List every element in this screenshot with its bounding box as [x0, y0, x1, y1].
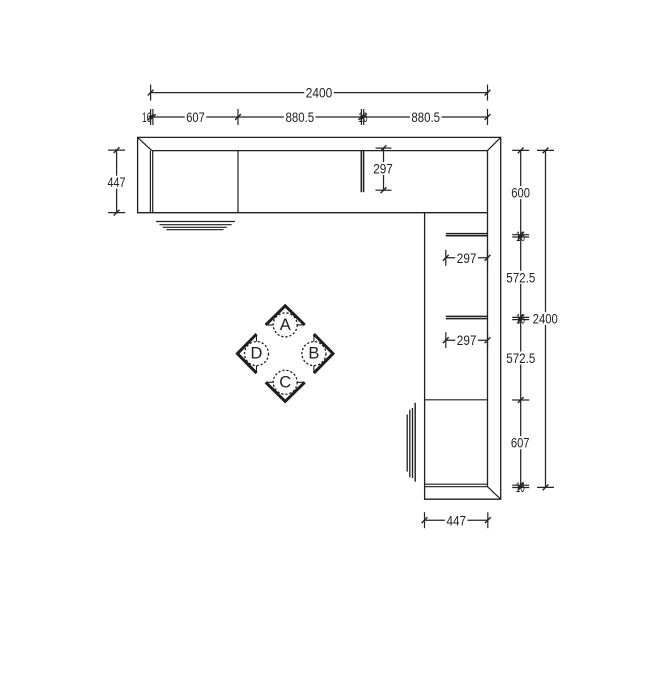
svg-text:600: 600 — [511, 185, 530, 201]
svg-text:2400: 2400 — [533, 310, 558, 326]
svg-text:A: A — [280, 316, 291, 334]
svg-text:607: 607 — [511, 435, 530, 451]
svg-text:297: 297 — [373, 161, 393, 177]
svg-text:C: C — [279, 373, 291, 391]
svg-text:880.5: 880.5 — [411, 109, 440, 125]
svg-text:16: 16 — [516, 311, 525, 327]
svg-text:572.5: 572.5 — [506, 350, 535, 366]
svg-text:16: 16 — [516, 479, 525, 495]
svg-text:297: 297 — [457, 332, 477, 348]
svg-text:880.5: 880.5 — [285, 109, 314, 125]
svg-text:16: 16 — [359, 109, 368, 125]
svg-text:2400: 2400 — [306, 85, 333, 101]
svg-text:297: 297 — [457, 250, 477, 266]
svg-text:447: 447 — [108, 174, 126, 190]
svg-text:607: 607 — [186, 109, 205, 125]
svg-text:447: 447 — [446, 512, 466, 528]
svg-text:B: B — [308, 345, 319, 363]
svg-text:D: D — [251, 345, 263, 363]
svg-text:16: 16 — [516, 228, 525, 244]
svg-text:16: 16 — [142, 109, 151, 125]
svg-text:572.5: 572.5 — [506, 269, 535, 285]
